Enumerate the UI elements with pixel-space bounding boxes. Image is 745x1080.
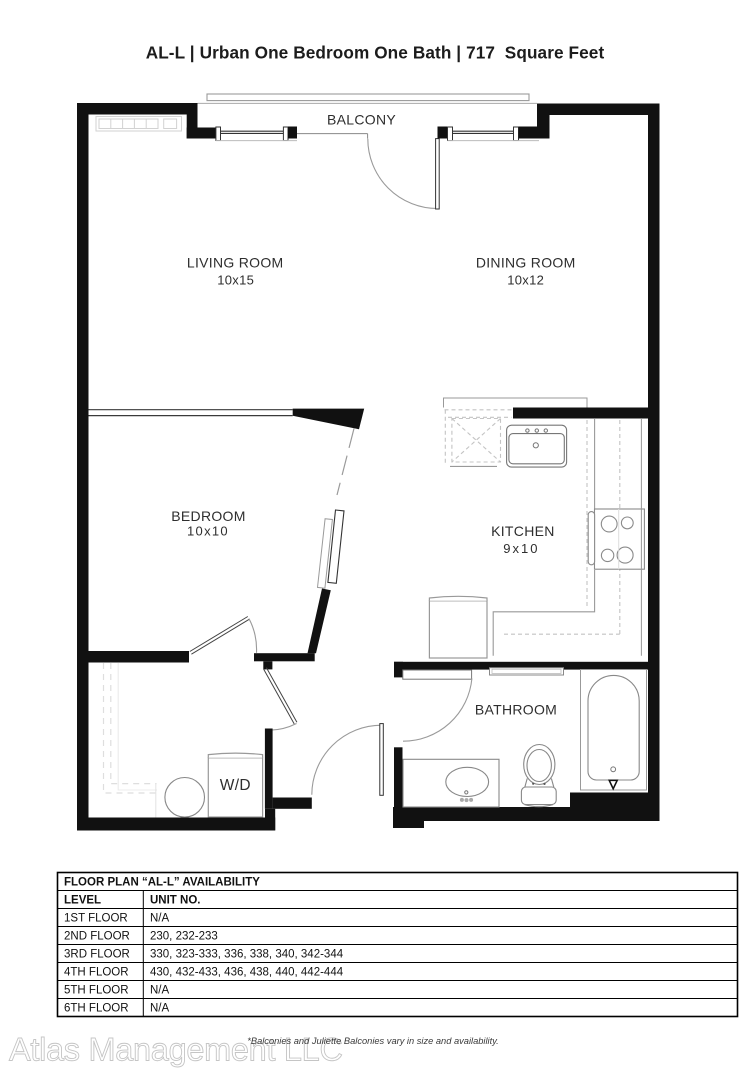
svg-text:9x10: 9x10 — [503, 541, 539, 556]
svg-text:330, 323-333, 336, 338, 340, 3: 330, 323-333, 336, 338, 340, 342-344 — [150, 949, 344, 961]
svg-text:N/A: N/A — [150, 1003, 170, 1015]
svg-text:BATHROOM: BATHROOM — [475, 702, 557, 718]
svg-text:3RD FLOOR: 3RD FLOOR — [64, 949, 130, 961]
svg-text:10x15: 10x15 — [217, 272, 254, 287]
svg-text:430, 432-433, 436, 438, 440, 4: 430, 432-433, 436, 438, 440, 442-444 — [150, 967, 344, 979]
svg-text:2ND FLOOR: 2ND FLOOR — [64, 931, 130, 943]
svg-text:10x10: 10x10 — [187, 524, 229, 539]
svg-text:*Balconies and Juliette Balcon: *Balconies and Juliette Balconies vary i… — [247, 1036, 499, 1046]
svg-text:6TH FLOOR: 6TH FLOOR — [64, 1003, 129, 1015]
svg-text:FLOOR PLAN “AL-L” AVAILABILITY: FLOOR PLAN “AL-L” AVAILABILITY — [64, 877, 260, 889]
svg-text:LEVEL: LEVEL — [64, 895, 101, 907]
svg-text:KITCHEN: KITCHEN — [491, 523, 555, 539]
svg-text:BEDROOM: BEDROOM — [171, 508, 245, 524]
svg-text:BALCONY: BALCONY — [327, 112, 396, 128]
svg-text:AL-L | Urban One Bedroom One B: AL-L | Urban One Bedroom One Bath | 717 … — [146, 43, 605, 63]
svg-text:W/D: W/D — [220, 777, 251, 794]
svg-text:DINING ROOM: DINING ROOM — [476, 254, 576, 270]
svg-text:N/A: N/A — [150, 985, 170, 997]
svg-text:N/A: N/A — [150, 913, 170, 925]
svg-text:10x12: 10x12 — [507, 272, 544, 287]
svg-text:230, 232-233: 230, 232-233 — [150, 931, 218, 943]
svg-text:UNIT NO.: UNIT NO. — [150, 895, 200, 907]
svg-text:LIVING ROOM: LIVING ROOM — [187, 254, 284, 270]
svg-text:1ST FLOOR: 1ST FLOOR — [64, 913, 128, 925]
svg-text:4TH FLOOR: 4TH FLOOR — [64, 967, 129, 979]
svg-text:5TH FLOOR: 5TH FLOOR — [64, 985, 129, 997]
